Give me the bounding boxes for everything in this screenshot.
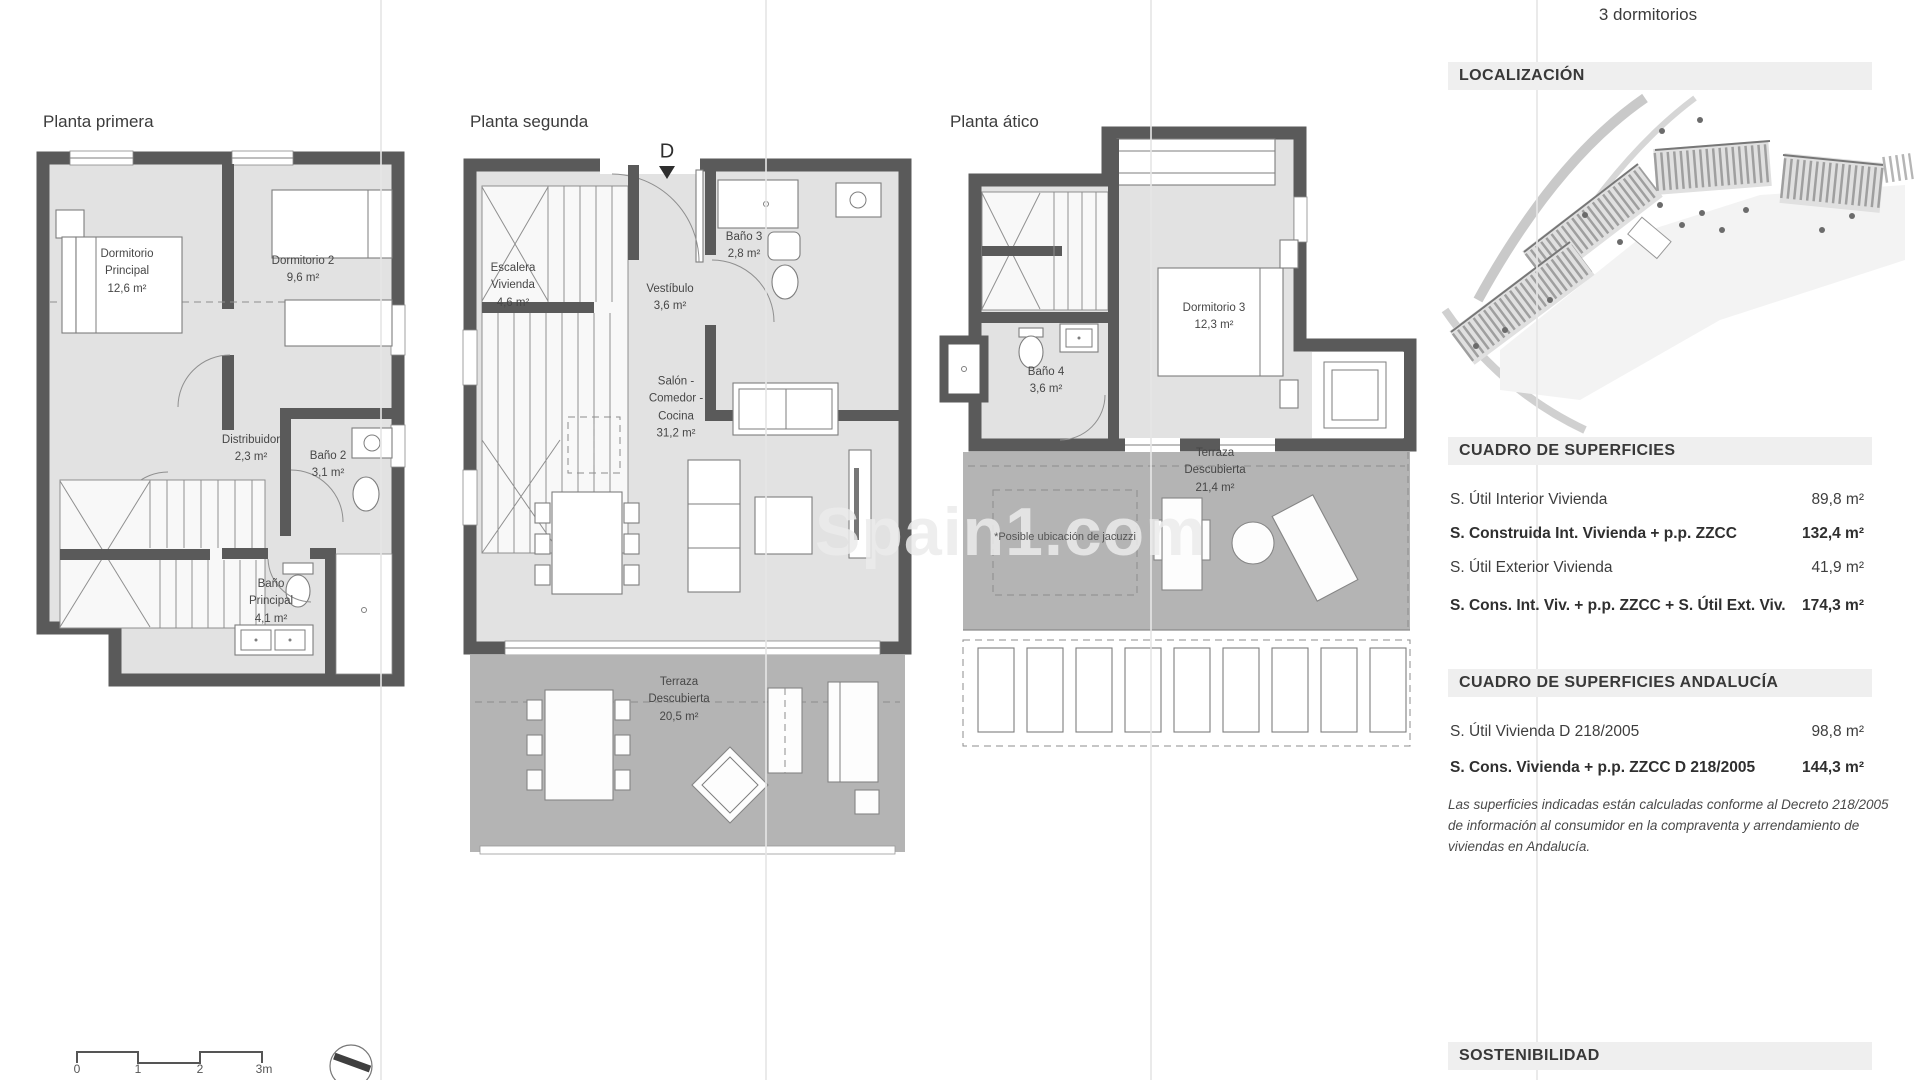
- section-marker-d: D: [660, 141, 674, 164]
- plan-atico-drawing: [944, 133, 1410, 746]
- row-value: 41,9 m²: [1811, 559, 1864, 577]
- table-row: S. Cons. Int. Viv. + p.p. ZZCC + S. Útil…: [1450, 597, 1864, 615]
- room-label-distribuidor: Distribuidor 2,3 m²: [222, 432, 280, 467]
- row-value: 98,8 m²: [1811, 723, 1864, 741]
- scale-label-3m: 3m: [256, 1062, 273, 1076]
- row-value: 132,4 m²: [1802, 525, 1864, 543]
- scale-label-2: 2: [197, 1062, 204, 1076]
- room-label-bano-principal: Baño Principal 4,1 m²: [249, 576, 293, 628]
- room-label-dormitorio-principal: Dormitorio Principal 12,6 m²: [100, 246, 153, 298]
- row-label: S. Útil Interior Vivienda: [1450, 491, 1607, 509]
- scale-label-1: 1: [135, 1062, 142, 1076]
- room-label-bano2: Baño 2 3,1 m²: [310, 448, 346, 483]
- row-label: S. Útil Exterior Vivienda: [1450, 559, 1613, 577]
- section-header-superficies: CUADRO DE SUPERFICIES: [1448, 437, 1872, 465]
- section-header-sostenibilidad: SOSTENIBILIDAD: [1448, 1042, 1872, 1070]
- localizacion-aerial-image: [1445, 98, 1912, 430]
- unit-type-header: 3 dormitorios: [1599, 5, 1697, 25]
- row-label: S. Cons. Int. Viv. + p.p. ZZCC + S. Útil…: [1450, 597, 1786, 615]
- row-label: S. Útil Vivienda D 218/2005: [1450, 723, 1639, 741]
- stairs-atico: [982, 192, 1108, 310]
- room-label-vestibulo: Vestíbulo 3,6 m²: [646, 281, 693, 316]
- room-label-bano4: Baño 4 3,6 m²: [1028, 364, 1064, 399]
- scale-label-0: 0: [74, 1062, 81, 1076]
- row-label: S. Cons. Vivienda + p.p. ZZCC D 218/2005: [1450, 759, 1755, 777]
- room-label-terraza-segunda: Terraza Descubierta 20,5 m²: [648, 674, 709, 726]
- jacuzzi-note: *Posible ubicación de jacuzzi: [994, 529, 1136, 546]
- room-label-dormitorio3: Dormitorio 3 12,3 m²: [1183, 300, 1246, 335]
- table-row: S. Cons. Vivienda + p.p. ZZCC D 218/2005…: [1450, 759, 1864, 777]
- row-label: S. Construida Int. Vivienda + p.p. ZZCC: [1450, 525, 1737, 543]
- pergola-row: [963, 640, 1410, 746]
- room-label-bano3: Baño 3 2,8 m²: [726, 229, 762, 264]
- legal-note: Las superficies indicadas están calculad…: [1448, 795, 1896, 858]
- plan-title-segunda: Planta segunda: [470, 112, 588, 132]
- section-header-superficies-andalucia: CUADRO DE SUPERFICIES ANDALUCÍA: [1448, 669, 1872, 697]
- table-row: S. Útil Interior Vivienda 89,8 m²: [1450, 491, 1864, 509]
- section-header-localizacion: LOCALIZACIÓN: [1448, 62, 1872, 90]
- row-value: 144,3 m²: [1802, 759, 1864, 777]
- row-value: 174,3 m²: [1802, 597, 1864, 615]
- room-label-terraza-atico: Terraza Descubierta 21,4 m²: [1184, 445, 1245, 497]
- room-label-dormitorio2: Dormitorio 2 9,6 m²: [272, 253, 335, 288]
- plan-title-primera: Planta primera: [43, 112, 154, 132]
- room-label-escalera: Escalera Vivienda 4,6 m²: [491, 260, 536, 312]
- table-row: S. Útil Exterior Vivienda 41,9 m²: [1450, 559, 1864, 577]
- scale-bar: [77, 1052, 262, 1063]
- room-label-salon: Salón - Comedor - Cocina 31,2 m²: [649, 374, 703, 443]
- table-row: S. Útil Vivienda D 218/2005 98,8 m²: [1450, 723, 1864, 741]
- floorplan-sheet: Spain1.com Planta primera Planta segunda…: [0, 0, 1920, 1080]
- table-row: S. Construida Int. Vivienda + p.p. ZZCC …: [1450, 525, 1864, 543]
- row-value: 89,8 m²: [1811, 491, 1864, 509]
- plan-primera-drawing: [43, 151, 405, 680]
- compass-icon: [330, 1045, 372, 1080]
- plan-title-atico: Planta ático: [950, 112, 1039, 132]
